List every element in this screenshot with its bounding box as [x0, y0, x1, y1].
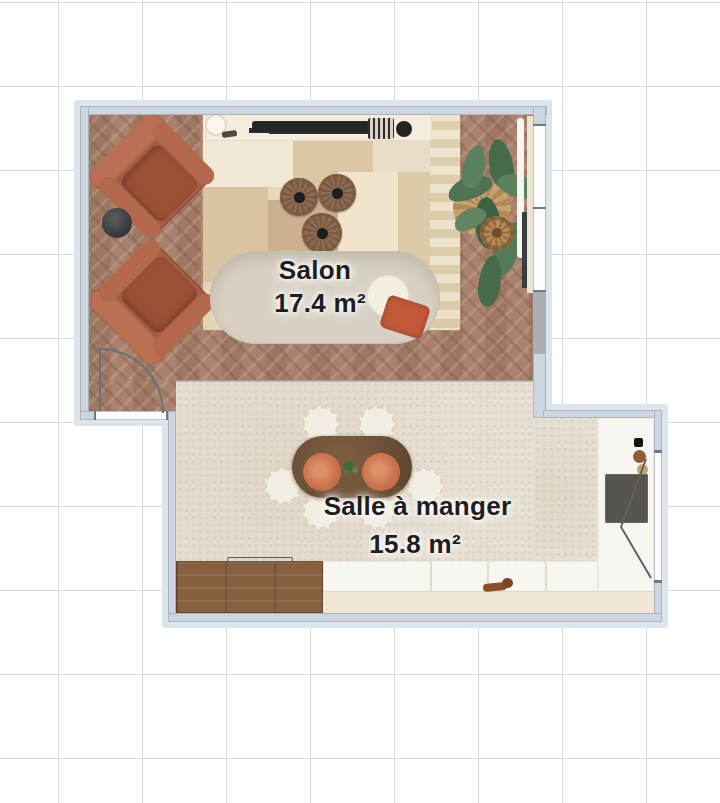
- plate-icon: [362, 453, 400, 491]
- door-leaf: [99, 348, 101, 411]
- appliance-icon[interactable]: [605, 474, 648, 523]
- salon-room-label: Salon: [230, 255, 400, 286]
- window-tick: [654, 450, 662, 453]
- window-tick: [533, 124, 546, 126]
- door-opening[interactable]: [654, 450, 662, 583]
- sideboard-icon[interactable]: [176, 561, 323, 613]
- wall-item-black: [634, 438, 643, 447]
- speaker-ball-icon: [396, 121, 412, 137]
- pouf-button: [294, 192, 305, 203]
- dog-head: [502, 578, 513, 588]
- window-tick: [94, 411, 96, 420]
- rattan-pouf-icon[interactable]: [480, 216, 514, 250]
- dog-icon[interactable]: [483, 577, 515, 593]
- floor-plan-canvas: Salon 17.4 m² Salle à manger 15.8 m²: [0, 0, 720, 803]
- dining-wall-top-right[interactable]: [543, 410, 662, 418]
- counter-seam: [545, 561, 547, 592]
- pot-icon: [633, 450, 646, 463]
- salon-area-label: 17.4 m²: [235, 288, 405, 319]
- dining-area-label: 15.8 m²: [330, 529, 500, 560]
- plate-icon: [303, 453, 341, 491]
- jute-pouf-icon[interactable]: [302, 213, 342, 253]
- centerpiece-plant-icon: [344, 461, 354, 471]
- pouf-button: [317, 228, 328, 239]
- window-tick: [166, 411, 168, 420]
- dining-wall-bottom[interactable]: [168, 613, 662, 622]
- rattan-pouf-center: [492, 228, 502, 238]
- jute-pouf-icon[interactable]: [318, 174, 356, 212]
- salon-wall-left[interactable]: [80, 106, 89, 420]
- counter-seam: [430, 561, 432, 592]
- window-shade: [534, 292, 545, 354]
- books-stack-icon: [368, 118, 394, 139]
- tv-soundbar-icon[interactable]: [252, 121, 370, 132]
- side-table-icon[interactable]: [102, 208, 132, 238]
- window-tick: [654, 580, 662, 583]
- dining-wall-left[interactable]: [168, 411, 176, 622]
- kitchen-counter-icon[interactable]: [323, 561, 598, 592]
- jute-pouf-icon[interactable]: [280, 178, 318, 216]
- window-tick: [533, 207, 546, 209]
- radiator-icon[interactable]: [522, 212, 527, 288]
- salon-wall-top[interactable]: [80, 106, 547, 115]
- counter-front-icon[interactable]: [323, 591, 654, 613]
- room-separator-line: [176, 380, 534, 382]
- pouf-button: [332, 188, 343, 199]
- window-icon[interactable]: [533, 124, 546, 292]
- tray-handle-icon: [227, 557, 293, 562]
- dining-room-label: Salle à manger: [300, 491, 535, 522]
